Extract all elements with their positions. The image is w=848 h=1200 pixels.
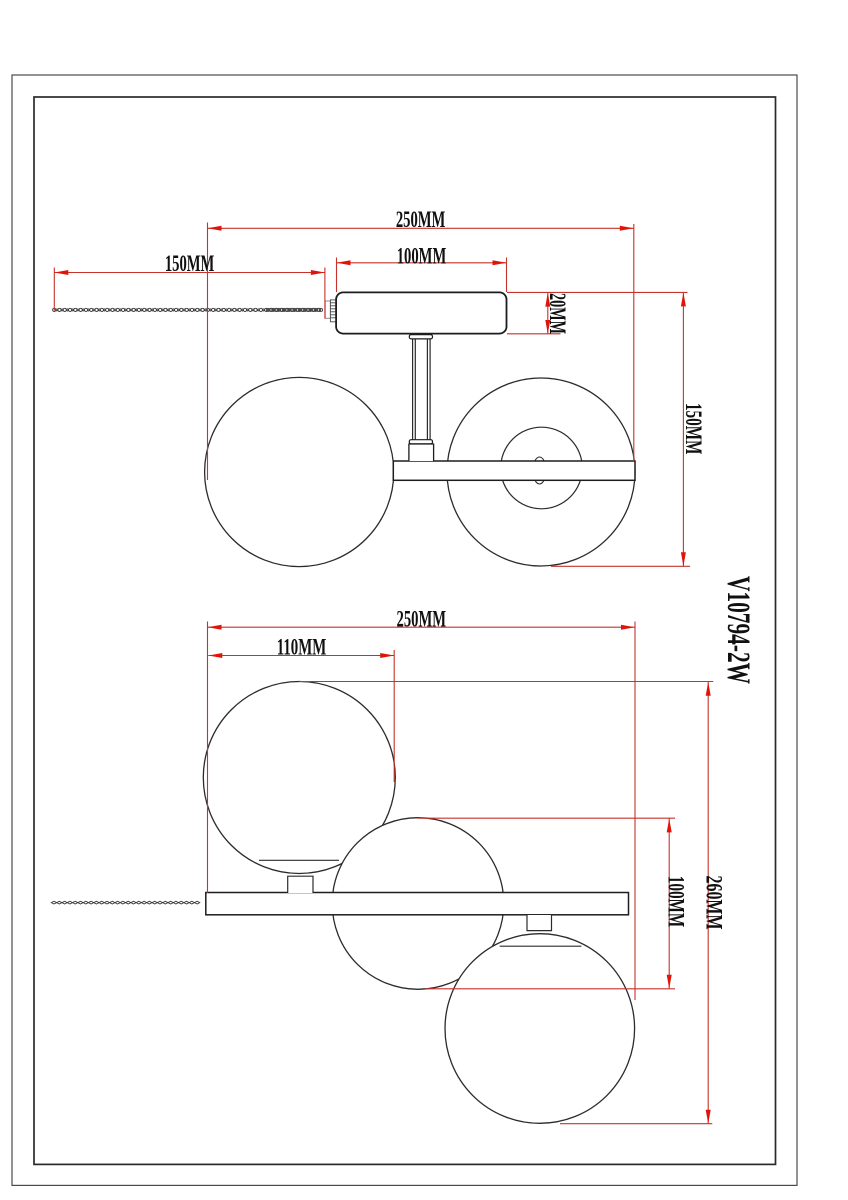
- svg-text:100MM: 100MM: [664, 876, 689, 928]
- svg-text:100MM: 100MM: [397, 244, 447, 269]
- svg-text:250MM: 250MM: [396, 207, 446, 232]
- svg-text:250MM: 250MM: [397, 607, 447, 632]
- svg-text:110MM: 110MM: [277, 635, 327, 660]
- svg-text:260MM: 260MM: [702, 876, 727, 930]
- svg-text:V10794-2W: V10794-2W: [720, 576, 756, 684]
- svg-text:20MM: 20MM: [545, 293, 570, 334]
- svg-text:150MM: 150MM: [681, 403, 706, 455]
- svg-text:150MM: 150MM: [165, 251, 215, 276]
